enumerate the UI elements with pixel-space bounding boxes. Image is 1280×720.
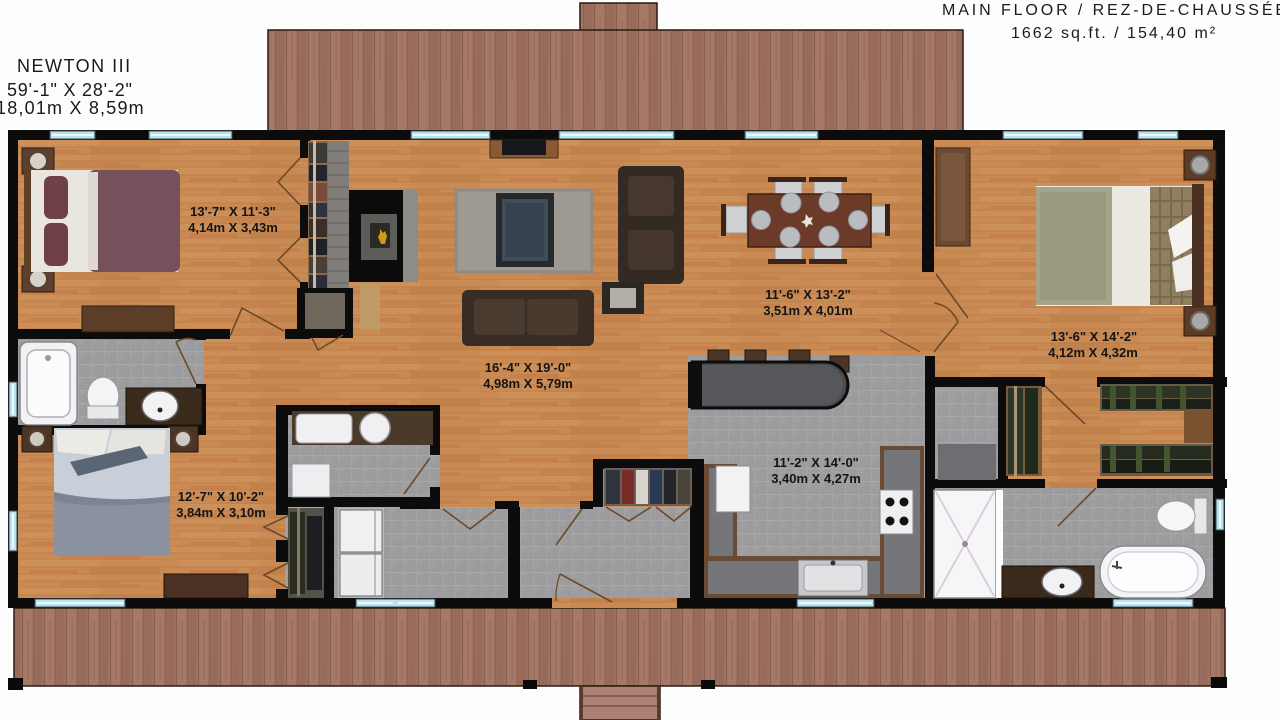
svg-text:12'-7" X 10'-2": 12'-7" X 10'-2" bbox=[178, 489, 264, 504]
svg-text:4,98m X 5,79m: 4,98m X 5,79m bbox=[483, 376, 573, 391]
svg-text:13'-7" X 11'-3": 13'-7" X 11'-3" bbox=[190, 204, 276, 219]
svg-text:4,12m X 4,32m: 4,12m X 4,32m bbox=[1048, 345, 1138, 360]
svg-text:MAIN FLOOR / REZ-DE-CHAUSSÉE: MAIN FLOOR / REZ-DE-CHAUSSÉE bbox=[942, 0, 1280, 19]
svg-text:11'-6" X 13'-2": 11'-6" X 13'-2" bbox=[765, 287, 851, 302]
svg-text:11'-2" X 14'-0": 11'-2" X 14'-0" bbox=[773, 455, 859, 470]
svg-text:NEWTON III: NEWTON III bbox=[17, 56, 132, 76]
svg-text:1662 sq.ft. / 154,40 m²: 1662 sq.ft. / 154,40 m² bbox=[1011, 25, 1217, 42]
svg-text:16'-4" X 19'-0": 16'-4" X 19'-0" bbox=[485, 360, 571, 375]
svg-text:3,51m X 4,01m: 3,51m X 4,01m bbox=[763, 303, 853, 318]
svg-text:59'-1" X 28'-2": 59'-1" X 28'-2" bbox=[7, 80, 133, 100]
svg-text:3,40m X 4,27m: 3,40m X 4,27m bbox=[771, 471, 861, 486]
svg-text:13'-6" X 14'-2": 13'-6" X 14'-2" bbox=[1051, 329, 1137, 344]
svg-text:3,84m X 3,10m: 3,84m X 3,10m bbox=[176, 505, 266, 520]
svg-text:18,01m X 8,59m: 18,01m X 8,59m bbox=[0, 98, 145, 118]
svg-text:4,14m X 3,43m: 4,14m X 3,43m bbox=[188, 220, 278, 235]
